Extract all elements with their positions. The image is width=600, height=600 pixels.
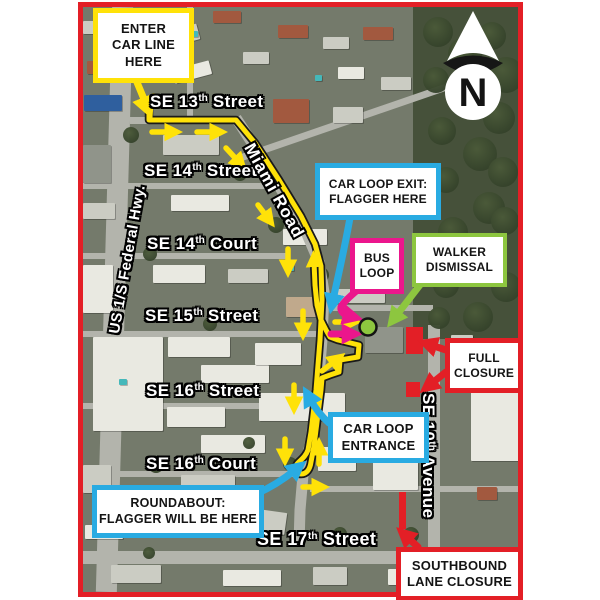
map-road bbox=[130, 117, 240, 124]
map-building bbox=[83, 265, 113, 313]
map-building bbox=[273, 99, 309, 123]
map-tree bbox=[488, 157, 518, 187]
callout-line: ROUNDABOUT: bbox=[130, 496, 225, 512]
callout-line: HERE bbox=[125, 54, 162, 70]
callout-full-closure: FULL CLOSURE bbox=[445, 338, 523, 393]
callout-bus-loop: BUS LOOP bbox=[350, 238, 404, 294]
callout-line: ENTRANCE bbox=[342, 438, 416, 454]
map-building bbox=[83, 145, 111, 183]
map-tree bbox=[448, 37, 482, 71]
callout-line: CAR LOOP bbox=[343, 421, 413, 437]
map-building bbox=[313, 567, 347, 585]
callout-enter-car-line: ENTER CAR LINE HERE bbox=[93, 8, 194, 83]
street-label-se-13th: SE 13th Street bbox=[150, 92, 263, 112]
map-tree bbox=[283, 457, 297, 471]
callout-line: CAR LOOP EXIT: bbox=[329, 177, 428, 192]
map-tree bbox=[423, 17, 453, 47]
callout-line: WALKER bbox=[433, 245, 486, 260]
map-building bbox=[333, 107, 363, 123]
street-label-se-16th-street: SE 16th Street bbox=[146, 381, 259, 401]
callout-walker-dismissal: WALKER DISMISSAL bbox=[412, 233, 507, 287]
traffic-map-page: N SE 13th Street SE 14th Street SE 14th … bbox=[0, 0, 600, 600]
map-tree bbox=[491, 207, 519, 235]
map-building bbox=[213, 11, 241, 23]
map-building bbox=[223, 570, 281, 586]
callout-line: CAR LINE bbox=[112, 37, 175, 53]
map-road bbox=[333, 305, 433, 311]
callout-car-loop-entrance: CAR LOOP ENTRANCE bbox=[328, 412, 429, 463]
map-tree bbox=[463, 302, 493, 332]
callout-line: SOUTHBOUND bbox=[412, 558, 507, 574]
map-tree bbox=[313, 267, 329, 283]
map-building bbox=[83, 203, 115, 219]
callout-southbound-lane-closure: SOUTHBOUND LANE CLOSURE bbox=[396, 547, 523, 600]
map-building bbox=[243, 52, 269, 64]
callout-line: FULL bbox=[468, 351, 499, 366]
map-tree bbox=[403, 527, 419, 543]
map-tree bbox=[483, 102, 515, 134]
map-building bbox=[286, 297, 316, 317]
map-building bbox=[255, 343, 301, 365]
callout-line: DISMISSAL bbox=[426, 260, 493, 275]
map-tree bbox=[143, 547, 155, 559]
map-road bbox=[83, 183, 266, 189]
callout-line: CLOSURE bbox=[454, 366, 514, 381]
map-building bbox=[315, 75, 322, 81]
map-building bbox=[228, 269, 268, 283]
map-building bbox=[119, 379, 127, 385]
map-tree bbox=[478, 22, 506, 50]
map-building bbox=[373, 462, 418, 490]
map-building bbox=[167, 407, 225, 427]
map-building bbox=[278, 25, 308, 38]
map-building bbox=[477, 487, 497, 500]
street-label-se-14th-court: SE 14th Court bbox=[147, 234, 257, 254]
map-building bbox=[168, 337, 230, 357]
callout-line: FLAGGER HERE bbox=[329, 192, 427, 207]
callout-line: LOOP bbox=[360, 266, 395, 281]
map-building bbox=[153, 265, 205, 283]
map-tree bbox=[428, 307, 450, 329]
map-building bbox=[111, 565, 161, 583]
map-building bbox=[363, 27, 393, 40]
map-building bbox=[163, 135, 219, 155]
map-building bbox=[201, 435, 265, 453]
map-tree bbox=[243, 437, 255, 449]
map-building bbox=[84, 95, 122, 111]
callout-line: FLAGGER WILL BE HERE bbox=[99, 512, 257, 528]
map-building bbox=[365, 327, 403, 353]
callout-line: BUS bbox=[364, 251, 390, 266]
map-tree bbox=[313, 377, 325, 389]
map-tree bbox=[453, 87, 483, 117]
map-building bbox=[323, 37, 349, 49]
map-tree bbox=[428, 117, 456, 145]
street-label-se-17th-street: SE 17th Street bbox=[257, 529, 376, 550]
street-label-se-14th-street: SE 14th Street bbox=[144, 161, 257, 181]
map-building bbox=[338, 67, 364, 79]
callout-roundabout-flagger: ROUNDABOUT: FLAGGER WILL BE HERE bbox=[92, 485, 264, 538]
street-label-se-16th-court: SE 16th Court bbox=[146, 454, 256, 474]
map-tree bbox=[488, 57, 523, 93]
callout-car-loop-exit: CAR LOOP EXIT: FLAGGER HERE bbox=[315, 163, 441, 220]
street-label-se-15th-street: SE 15th Street bbox=[145, 306, 258, 326]
map-building bbox=[171, 195, 229, 211]
map-tree bbox=[123, 127, 139, 143]
callout-line: ENTER bbox=[121, 21, 166, 37]
map-tree bbox=[423, 67, 449, 93]
map-building bbox=[287, 265, 294, 271]
map-building bbox=[381, 77, 411, 90]
callout-line: LANE CLOSURE bbox=[407, 574, 512, 590]
